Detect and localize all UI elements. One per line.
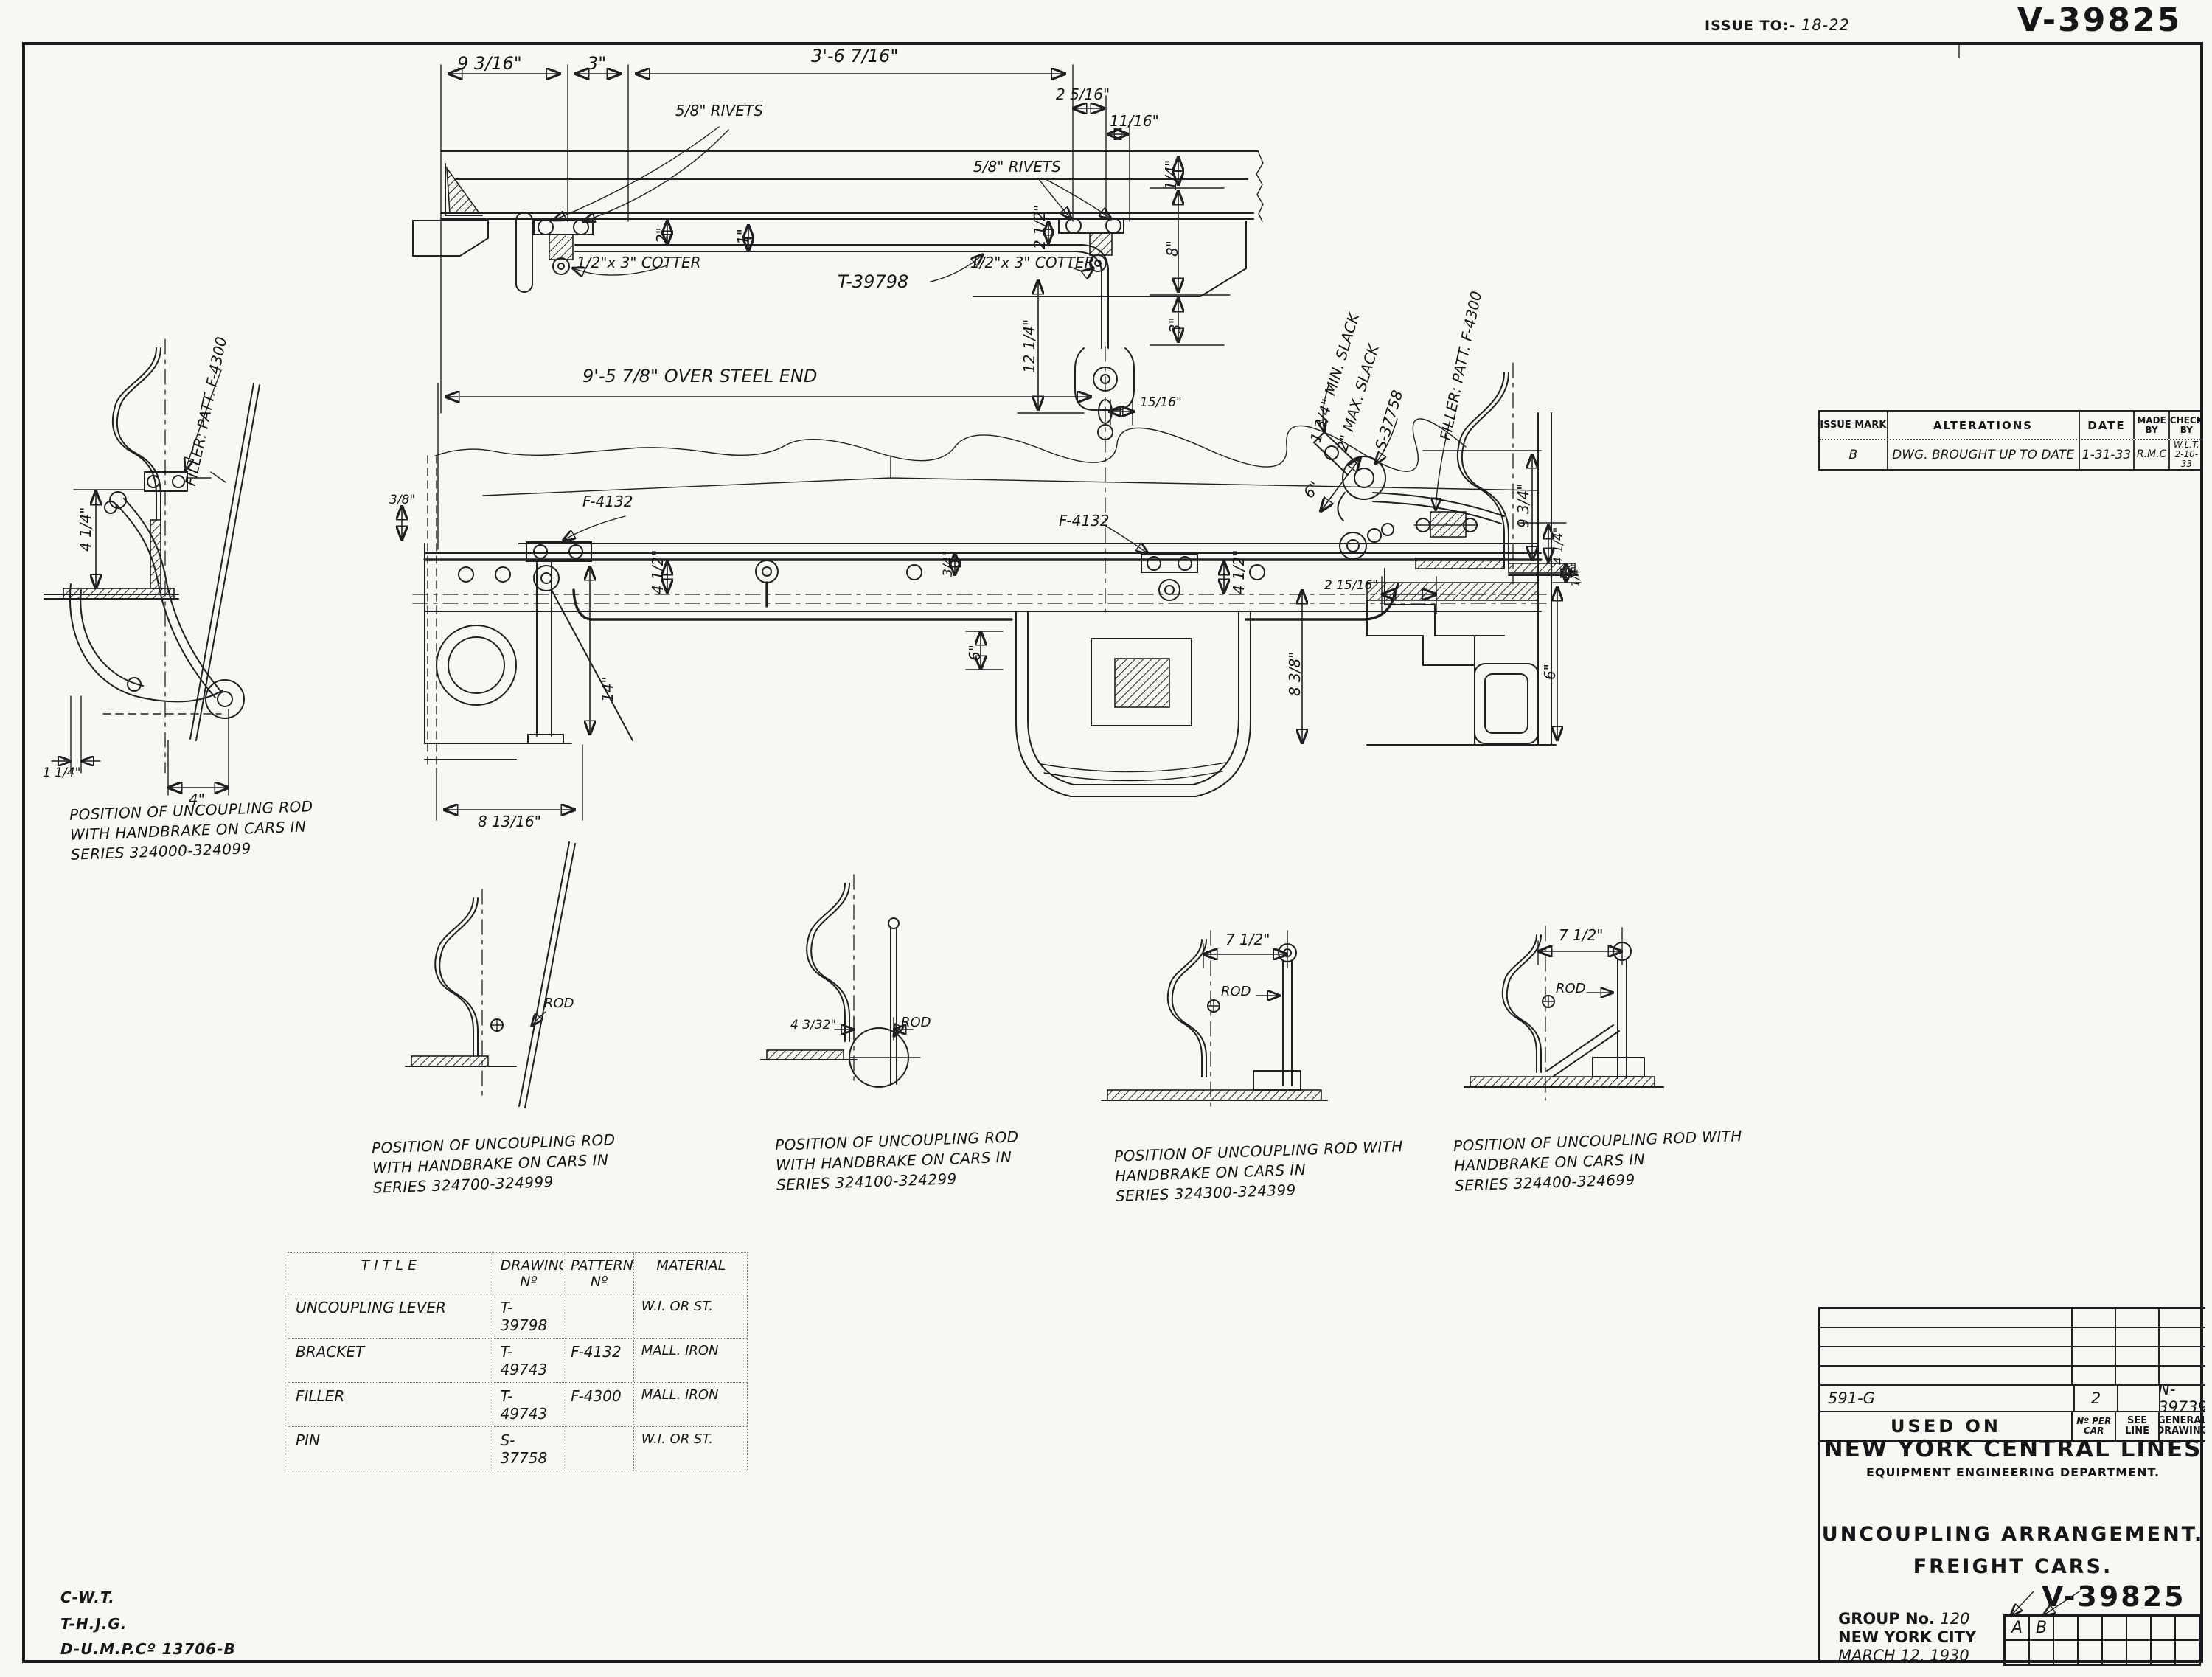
part-title: UNCOUPLING LEVER bbox=[288, 1294, 493, 1338]
dim-label: 4 1/2" bbox=[1230, 550, 1248, 594]
parts-row-pin: PIN S-37758 W.I. OR ST. bbox=[288, 1427, 747, 1471]
alteration-made-by: R.M.C bbox=[2135, 440, 2169, 469]
dim-label: 4 1/4" bbox=[77, 507, 94, 552]
main-elevation-view bbox=[413, 65, 1263, 612]
part-pattern-no bbox=[563, 1294, 634, 1338]
alterations-header-row: ISSUE MARK ALTERATIONS DATE MADE BY CHEC… bbox=[1820, 412, 2203, 440]
dim-label: 4 1/2" bbox=[649, 550, 667, 594]
detail-series-324400 bbox=[1464, 926, 1663, 1100]
dim-label: 3'-6 7/16" bbox=[811, 46, 898, 66]
detail-series-324100 bbox=[761, 875, 920, 1087]
part-label-bracket-left: F-4132 bbox=[582, 493, 633, 510]
part-label-cotter-left: 1/2"x 3" COTTER bbox=[577, 254, 701, 271]
group-city-date: GROUP No. 120 NEW YORK CITY MARCH 12, 19… bbox=[1838, 1610, 1976, 1665]
dim-label: 11/16" bbox=[1110, 112, 1159, 130]
used-on-entry-row: 591-G 2 N-39739 bbox=[1820, 1386, 2205, 1412]
col-pattern-no: PATTERN Nº bbox=[563, 1253, 634, 1294]
part-title: FILLER bbox=[288, 1383, 493, 1426]
revision-cell-a: A bbox=[2005, 1616, 2029, 1640]
parts-row-uncoupling-lever: UNCOUPLING LEVER T-39798 W.I. OR ST. bbox=[288, 1294, 747, 1339]
part-material: W.I. OR ST. bbox=[634, 1427, 747, 1471]
part-label-rod: ROD bbox=[1556, 981, 1586, 996]
part-label-rod: ROD bbox=[544, 996, 574, 1011]
detail-series-324300 bbox=[1102, 931, 1327, 1106]
col-drawing-no: DRAWING Nº bbox=[493, 1253, 564, 1294]
company-name: NEW YORK CENTRAL LINES bbox=[1820, 1436, 2205, 1462]
used-on-empty-row bbox=[1820, 1328, 2205, 1347]
dim-label: 15/16" bbox=[1140, 395, 1182, 410]
drawing-title-line1: UNCOUPLING ARRANGEMENT. bbox=[1820, 1518, 2205, 1551]
department-name: EQUIPMENT ENGINEERING DEPARTMENT. bbox=[1820, 1465, 2205, 1479]
part-pattern-no: F-4132 bbox=[563, 1339, 634, 1382]
dim-label: 3/4" bbox=[941, 551, 956, 577]
revision-cell-b: B bbox=[2029, 1616, 2053, 1640]
used-on-empty-row bbox=[1820, 1367, 2205, 1386]
revision-grid: A B bbox=[2003, 1614, 2201, 1666]
part-drawing-no: T-49743 bbox=[493, 1339, 564, 1382]
group-label: GROUP No. bbox=[1838, 1610, 1935, 1628]
alteration-check-by: W.L.T. 2-10-33 bbox=[2170, 440, 2203, 469]
alteration-date: 1-31-33 bbox=[2080, 440, 2135, 469]
city: NEW YORK CITY bbox=[1838, 1628, 1976, 1647]
dim-label: 3" bbox=[1166, 317, 1184, 333]
part-material: MALL. IRON bbox=[634, 1339, 747, 1382]
dim-label: 6" bbox=[966, 645, 984, 661]
drawing-sheet: ISSUE TO:- 18-22 V-39825 bbox=[0, 0, 2212, 1677]
part-pattern-no bbox=[563, 1427, 634, 1471]
part-label-lever: T-39798 bbox=[838, 271, 908, 292]
group-value: 120 bbox=[1940, 1610, 1969, 1628]
part-drawing-no: T-49743 bbox=[493, 1383, 564, 1426]
date: MARCH 12, 1930 bbox=[1838, 1647, 1976, 1665]
group-number: GROUP No. 120 bbox=[1838, 1610, 1976, 1628]
caption-series-324100: POSITION OF UNCOUPLING ROD WITH HANDBRAK… bbox=[775, 1127, 1020, 1195]
dim-label-over-steel-end: 9'-5 7/8" OVER STEEL END bbox=[582, 366, 817, 386]
caption-series-324400: POSITION OF UNCOUPLING ROD WITH HANDBRAK… bbox=[1453, 1126, 1744, 1196]
dim-label: 2 5/16" bbox=[1056, 86, 1110, 103]
part-title: PIN bbox=[288, 1427, 493, 1471]
part-label-cotter-right: 1/2"x 3" COTTER bbox=[970, 254, 1095, 271]
part-label-rivets-right: 5/8" RIVETS bbox=[973, 158, 1061, 176]
part-drawing-no: T-39798 bbox=[493, 1294, 564, 1338]
dim-label: 8 3/8" bbox=[1286, 652, 1304, 696]
used-on-empty-row bbox=[1820, 1309, 2205, 1328]
part-title: BRACKET bbox=[288, 1339, 493, 1382]
used-on-empty-row bbox=[1820, 1347, 2205, 1367]
company-block: NEW YORK CENTRAL LINES EQUIPMENT ENGINEE… bbox=[1820, 1436, 2205, 1479]
part-label-rod: ROD bbox=[901, 1015, 931, 1030]
parts-table: TITLE DRAWING Nº PATTERN Nº MATERIAL UNC… bbox=[288, 1252, 748, 1471]
col-date: DATE bbox=[2080, 412, 2135, 439]
check-by-date: 2-10-33 bbox=[2170, 450, 2203, 469]
alteration-text: DWG. BROUGHT UP TO DATE bbox=[1888, 440, 2080, 469]
part-drawing-no: S-37758 bbox=[493, 1427, 564, 1471]
used-on-general: N-39739 bbox=[2160, 1386, 2205, 1411]
dim-label: 8" bbox=[1164, 240, 1181, 257]
dim-label: 4 1/4" bbox=[1551, 527, 1566, 565]
dim-label: 9 3/4" bbox=[1514, 484, 1532, 528]
part-material: W.I. OR ST. bbox=[634, 1294, 747, 1338]
dim-label: 2 15/16" bbox=[1324, 578, 1378, 593]
dim-label: 8 13/16" bbox=[478, 813, 541, 830]
left-end-view bbox=[44, 339, 260, 795]
dim-label: 14" bbox=[599, 676, 616, 702]
dim-label: 1" bbox=[734, 229, 752, 245]
dim-label: 3/8" bbox=[389, 493, 415, 507]
title-block: 591-G 2 N-39739 USED ON Nº PER CAR SEE L… bbox=[1818, 1307, 2205, 1663]
parts-row-bracket: BRACKET T-49743 F-4132 MALL. IRON bbox=[288, 1339, 747, 1383]
used-on-table: 591-G 2 N-39739 USED ON Nº PER CAR SEE L… bbox=[1820, 1309, 2205, 1442]
dim-label: 2 1/2" bbox=[1031, 205, 1048, 249]
col-title: TITLE bbox=[288, 1253, 493, 1294]
dim-label: 3" bbox=[587, 53, 606, 74]
corner-note-2: T-H.J.G. bbox=[60, 1615, 127, 1633]
alteration-mark: B bbox=[1820, 440, 1888, 469]
used-on-count: 2 bbox=[2075, 1386, 2118, 1411]
caption-series-324300: POSITION OF UNCOUPLING ROD WITH HANDBRAK… bbox=[1114, 1136, 1405, 1206]
col-check-by: CHECK BY bbox=[2170, 412, 2203, 439]
dim-label: 12 1/4" bbox=[1020, 319, 1038, 373]
dim-label: 2" bbox=[653, 227, 671, 243]
corner-note-1: C-W.T. bbox=[60, 1589, 115, 1606]
detail-series-324700 bbox=[406, 842, 575, 1108]
alterations-table: ISSUE MARK ALTERATIONS DATE MADE BY CHEC… bbox=[1818, 410, 2203, 471]
dim-label: 1/4" bbox=[1162, 160, 1180, 190]
dim-label: 4 3/32" bbox=[790, 1018, 836, 1032]
drawing-title: UNCOUPLING ARRANGEMENT. FREIGHT CARS. bbox=[1820, 1518, 2205, 1583]
caption-series-324000: POSITION OF UNCOUPLING ROD WITH HANDBRAK… bbox=[69, 796, 315, 864]
part-label-rivets-left: 5/8" RIVETS bbox=[675, 102, 763, 119]
dim-label: 9 3/16" bbox=[457, 53, 522, 74]
drawing-number-title-block: V-39825 bbox=[2042, 1580, 2186, 1613]
dim-label: 6" bbox=[1541, 664, 1559, 680]
col-issue-mark: ISSUE MARK bbox=[1820, 412, 1888, 439]
drawing-title-line2: FREIGHT CARS. bbox=[1820, 1551, 2205, 1583]
part-label-rod: ROD bbox=[1221, 984, 1251, 999]
part-label-bracket-right: F-4132 bbox=[1059, 512, 1110, 530]
alteration-row-b: B DWG. BROUGHT UP TO DATE 1-31-33 R.M.C … bbox=[1820, 440, 2203, 469]
caption-series-324700: POSITION OF UNCOUPLING ROD WITH HANDBRAK… bbox=[372, 1130, 617, 1198]
dim-label: 1/4" bbox=[1569, 564, 1582, 587]
parts-header-row: TITLE DRAWING Nº PATTERN Nº MATERIAL bbox=[288, 1253, 747, 1294]
dim-label: 7 1/2" bbox=[1225, 931, 1270, 948]
part-material: MALL. IRON bbox=[634, 1383, 747, 1426]
col-alterations: ALTERATIONS bbox=[1888, 412, 2080, 439]
part-pattern-no: F-4300 bbox=[563, 1383, 634, 1426]
used-on-line: 591-G bbox=[1820, 1386, 2075, 1411]
dim-label: 1 1/4" bbox=[43, 765, 80, 780]
col-material: MATERIAL bbox=[634, 1253, 747, 1294]
dim-label: 7 1/2" bbox=[1559, 926, 1603, 944]
corner-note-3: D-U.M.P.Cº 13706-B bbox=[60, 1640, 236, 1658]
parts-row-filler: FILLER T-49743 F-4300 MALL. IRON bbox=[288, 1383, 747, 1427]
col-made-by: MADE BY bbox=[2135, 412, 2169, 439]
